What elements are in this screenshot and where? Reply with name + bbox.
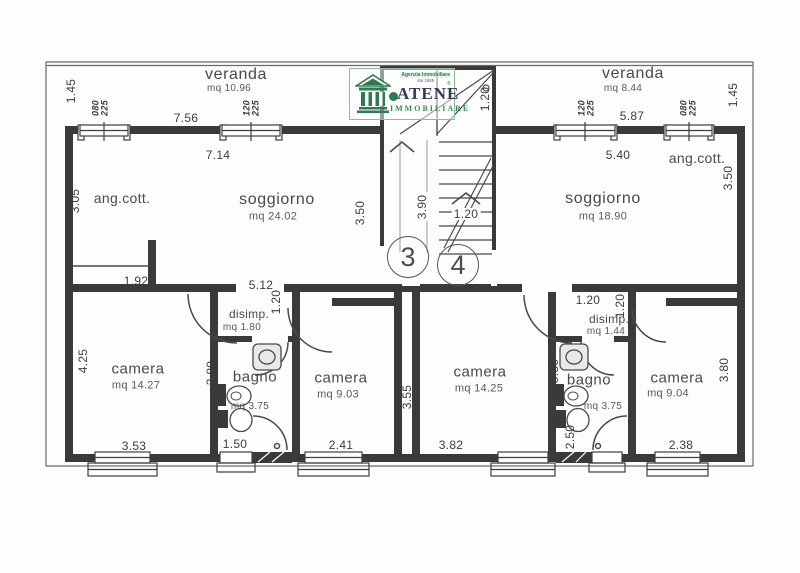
dim-veranda-right-height: 1.45 [727, 83, 739, 108]
dim-door-right-a: 1.20 [574, 294, 603, 306]
dim-bagno-left-height: 3.80 [205, 361, 217, 386]
dim-camera-left-small-width: 2.41 [329, 439, 354, 451]
window-spec-120-left: 120 225 [242, 100, 259, 116]
room-label-angcott-left: ang.cott. [94, 191, 150, 205]
area-label-camera-right-small: mq 9.04 [647, 388, 689, 399]
area-label-bagno-right: mq 3.75 [584, 402, 622, 412]
unit-badge-3: 3 [387, 236, 429, 278]
floorplan-page: veranda mq 10.96 1.45 080 225 7.56 120 2… [0, 0, 800, 573]
window-spec-080-right: 080 225 [679, 100, 696, 116]
room-label-disimp-right: disimp. [589, 313, 629, 325]
logo-tagline-year: dal 1965 [400, 78, 451, 83]
agency-logo: ATENE ® IMMOBILIARE Agenzia Immobiliare … [349, 68, 455, 120]
room-label-camera-left-small: camera [314, 370, 367, 385]
area-label-camera-left-small: mq 9.03 [317, 389, 359, 400]
unit-badge-4: 4 [437, 244, 479, 286]
room-label-veranda-left: veranda [205, 67, 267, 83]
dim-stair-height: 3.90 [416, 193, 428, 222]
area-label-veranda-right: mq 8.44 [604, 84, 642, 94]
room-label-bagno-right: bagno [567, 372, 611, 387]
dim-veranda-left-height: 1.45 [65, 79, 77, 104]
dim-veranda-left-width: 7.56 [174, 112, 199, 124]
dim-stair-width: 1.20 [452, 208, 481, 220]
dim-angcott-left-stub: 1.92 [124, 275, 149, 287]
logo-taglines: Agenzia Immobiliare dal 1965 [400, 72, 451, 83]
room-label-soggiorno-right: soggiorno [565, 191, 641, 207]
dim-party-wall-height: 3.55 [401, 385, 413, 410]
area-label-soggiorno-left: mq 24.02 [249, 211, 297, 222]
room-label-veranda-right: veranda [602, 66, 664, 82]
dim-veranda-right-width: 5.87 [620, 110, 645, 122]
area-label-veranda-left: mq 10.96 [207, 84, 251, 94]
room-label-bagno-left: bagno [233, 369, 277, 384]
dim-angcott-right-height: 3.50 [722, 166, 734, 191]
window-spec-120-right: 120 225 [577, 100, 594, 116]
area-label-bagno-left: mq 3.75 [231, 402, 269, 412]
room-label-camera-left-large: camera [111, 361, 164, 376]
dim-bagno-right-bottom: 2.50 [564, 425, 576, 450]
dim-camera-right-small-width: 2.38 [669, 439, 694, 451]
dim-stair-top: 1.20 [479, 87, 491, 112]
temple-icon [355, 74, 391, 114]
dim-soggiorno-left-width: 7.14 [206, 149, 231, 161]
room-label-soggiorno-left: soggiorno [239, 192, 315, 208]
room-label-disimp-left: disimp. [229, 308, 269, 320]
area-label-disimp-right: mq 1.44 [587, 327, 625, 337]
dim-camera-left-large-height: 4.25 [77, 349, 89, 374]
area-label-camera-left-large: mq 14.27 [112, 380, 160, 391]
dim-camera-right-small-height: 3.80 [718, 358, 730, 383]
dim-camera-left-large-width: 3.53 [122, 440, 147, 452]
area-label-soggiorno-right: mq 18.90 [579, 211, 627, 222]
window-spec-080-left: 080 225 [91, 100, 108, 116]
dim-door-left: 1.20 [270, 290, 282, 315]
logo-brand: ATENE [397, 84, 459, 104]
logo-subtitle: IMMOBILIARE [390, 104, 470, 113]
area-label-disimp-left: mq 1.80 [223, 323, 261, 333]
dim-angcott-left-height: 3.05 [69, 189, 81, 214]
room-label-camera-right-large: camera [453, 364, 506, 379]
room-label-angcott-right: ang.cott. [669, 151, 725, 165]
area-label-camera-right-large: mq 14.25 [455, 383, 503, 394]
dim-camera-right-large-width: 3.82 [439, 439, 464, 451]
dim-soggiorno-right-width: 5.40 [606, 149, 631, 161]
dim-soggiorno-left-height: 3.50 [354, 201, 366, 226]
room-label-camera-right-small: camera [650, 370, 703, 385]
dim-bagno-right-height: 3.80 [548, 359, 560, 384]
dim-bagno-left-width: 1.50 [223, 438, 248, 450]
